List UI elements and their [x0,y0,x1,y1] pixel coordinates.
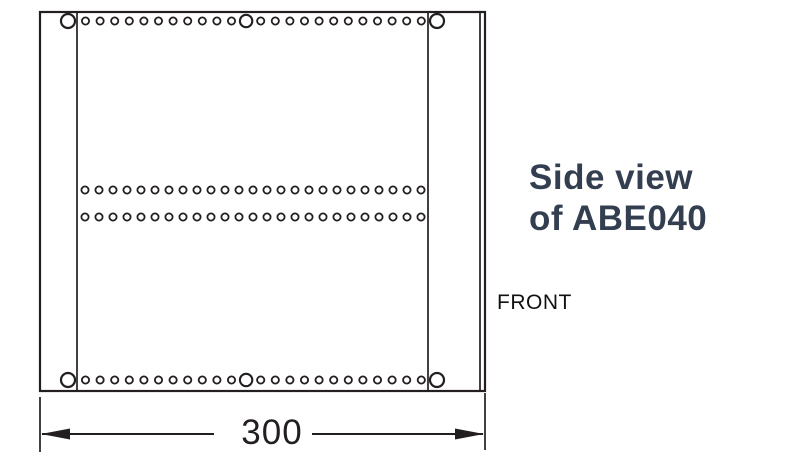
small-hole [199,17,206,24]
small-hole [228,17,235,24]
small-hole [82,17,89,24]
small-hole [330,17,337,24]
small-hole [82,376,89,383]
small-hole [193,213,200,220]
small-hole [126,17,133,24]
small-hole [417,186,424,193]
panel-outline [40,12,485,391]
small-hole [81,186,88,193]
small-hole [345,17,352,24]
small-hole [155,376,162,383]
small-hole [319,186,326,193]
small-hole [301,376,308,383]
small-hole [137,186,144,193]
small-hole [301,17,308,24]
small-hole [263,186,270,193]
small-hole [213,17,220,24]
small-hole [235,186,242,193]
small-hole [333,213,340,220]
small-hole [184,17,191,24]
small-hole [330,376,337,383]
corner-hole [61,14,75,28]
small-hole [333,186,340,193]
small-hole [403,186,410,193]
small-hole [257,17,264,24]
small-hole [272,17,279,24]
small-hole [359,17,366,24]
small-hole [137,213,144,220]
dimension-arrow-right [455,429,484,440]
small-hole [95,186,102,193]
small-hole [95,213,102,220]
small-hole [277,213,284,220]
small-hole [199,376,206,383]
small-hole [126,376,133,383]
small-hole [272,376,279,383]
small-hole [97,376,104,383]
small-hole [170,17,177,24]
small-hole [277,186,284,193]
small-hole [221,213,228,220]
small-hole [389,376,396,383]
corner-hole [430,373,444,387]
small-hole [374,376,381,383]
small-hole [345,376,352,383]
drawing-title-line-1: Side view [529,157,707,198]
small-hole [403,213,410,220]
small-hole [123,186,130,193]
small-hole [257,376,264,383]
small-hole [207,213,214,220]
page: Side view of ABE040 FRONT 300 [0,0,798,455]
small-hole [375,213,382,220]
small-hole [155,17,162,24]
corner-hole [430,14,444,28]
small-hole [403,376,410,383]
dimension-arrow-left [41,429,70,440]
small-hole [97,17,104,24]
small-hole [170,376,177,383]
small-hole [235,213,242,220]
small-hole [111,17,118,24]
drawing-title-line-2: of ABE040 [529,198,707,239]
small-hole [389,186,396,193]
small-hole [140,376,147,383]
small-hole [319,213,326,220]
small-hole [389,17,396,24]
small-hole [374,17,381,24]
dimension-value: 300 [222,414,322,452]
small-hole [109,186,116,193]
large-hole [240,374,252,386]
small-hole [249,213,256,220]
small-hole [165,213,172,220]
small-hole [291,213,298,220]
small-hole [179,186,186,193]
small-hole [389,213,396,220]
small-hole [347,186,354,193]
small-hole [286,17,293,24]
small-hole [403,17,410,24]
large-hole [240,15,252,27]
small-hole [221,186,228,193]
small-hole [151,186,158,193]
small-hole [418,17,425,24]
small-hole [193,186,200,193]
small-hole [305,213,312,220]
small-hole [305,186,312,193]
small-hole [361,186,368,193]
small-hole [291,186,298,193]
small-hole [151,213,158,220]
small-hole [359,376,366,383]
small-hole [179,213,186,220]
corner-hole [61,373,75,387]
small-hole [316,17,323,24]
small-hole [347,213,354,220]
small-hole [418,376,425,383]
small-hole [123,213,130,220]
small-hole [184,376,191,383]
small-hole [228,376,235,383]
drawing-title: Side view of ABE040 [529,157,707,239]
small-hole [111,376,118,383]
small-hole [263,213,270,220]
small-hole [165,186,172,193]
small-hole [286,376,293,383]
small-hole [361,213,368,220]
small-hole [417,213,424,220]
small-hole [109,213,116,220]
small-hole [249,186,256,193]
front-label: FRONT [497,290,572,315]
small-hole [375,186,382,193]
small-hole [207,186,214,193]
small-hole [213,376,220,383]
small-hole [140,17,147,24]
small-hole [81,213,88,220]
small-hole [316,376,323,383]
